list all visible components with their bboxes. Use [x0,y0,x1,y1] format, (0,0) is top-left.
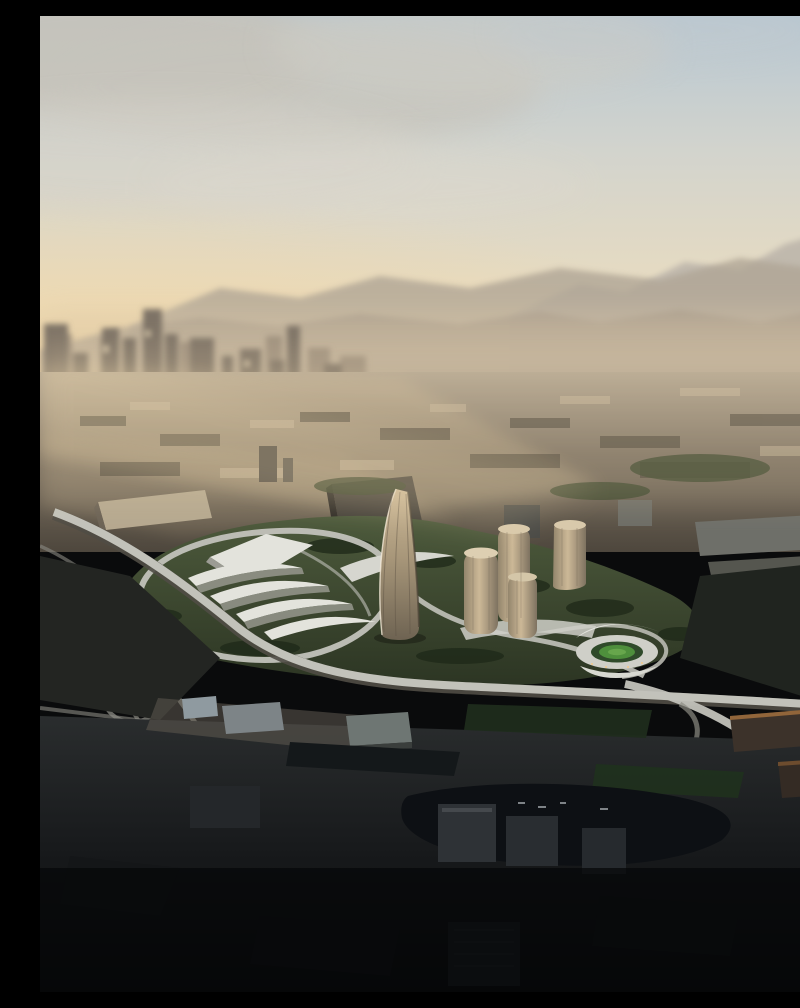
warehouse-grey-roof-2 [346,712,412,746]
right-industrial-parcels [680,561,800,708]
render-svg [40,16,800,992]
bottom-vignette [40,868,800,992]
aerial-city-render [40,16,800,992]
warehouse-blue-roof [182,696,218,719]
tower-right [553,520,586,590]
apartment-block [438,804,496,862]
tower-front-left [464,548,498,635]
tower-front-right [508,573,537,639]
warehouse-grey-roof [222,702,284,734]
